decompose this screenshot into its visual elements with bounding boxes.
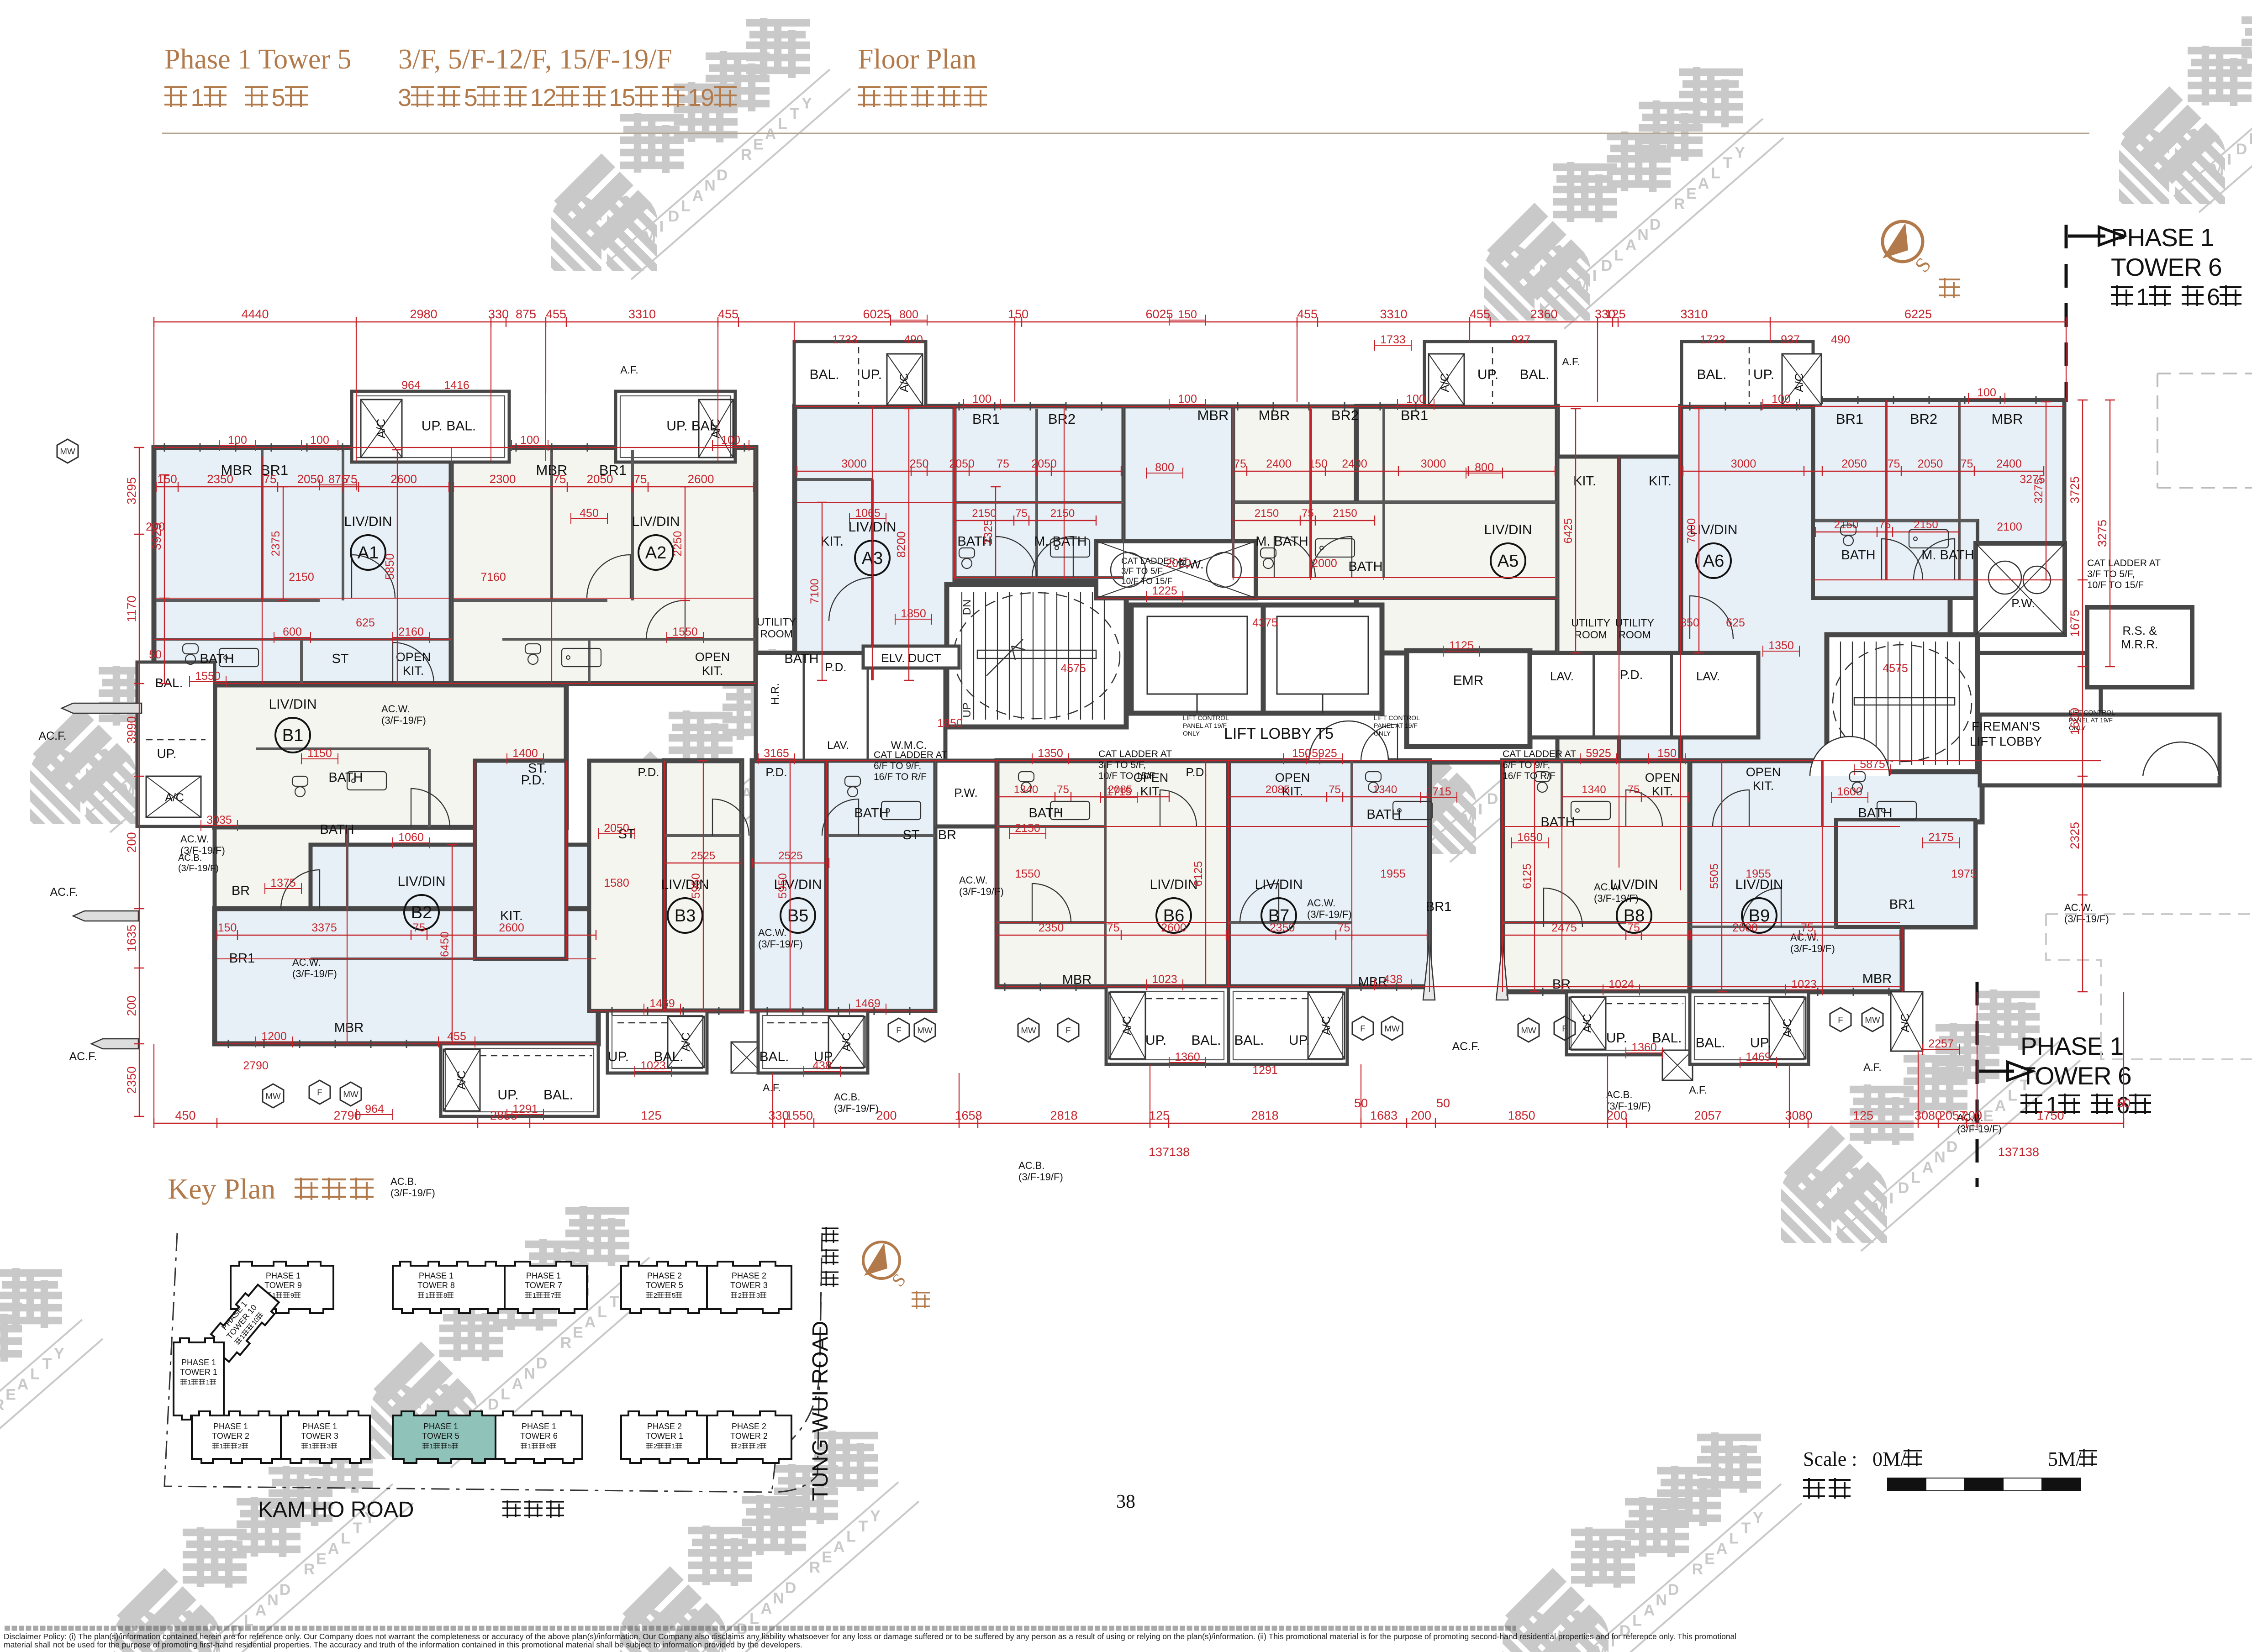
svg-text:MW: MW [1521, 1026, 1536, 1035]
svg-text:75: 75 [1627, 921, 1640, 934]
svg-text:(3/F-19/F): (3/F-19/F) [390, 1187, 435, 1199]
svg-text:UP.: UP. [1750, 1036, 1771, 1051]
svg-text:BAL.: BAL. [1697, 367, 1726, 382]
svg-text:5: 5 [271, 84, 285, 111]
svg-text:2: 2 [238, 1442, 242, 1450]
svg-text:1350: 1350 [1038, 747, 1063, 760]
svg-text:150: 150 [1292, 747, 1311, 760]
svg-text:3/F TO 5/F,: 3/F TO 5/F, [1121, 567, 1164, 576]
svg-text:875: 875 [516, 307, 536, 321]
svg-text:2050: 2050 [587, 472, 613, 486]
svg-text:A/C: A/C [680, 1032, 692, 1052]
svg-text:2150: 2150 [1255, 507, 1279, 520]
svg-text:2: 2 [756, 1442, 760, 1450]
svg-text:0M/: 0M/ [1872, 1448, 1906, 1470]
svg-text:100: 100 [1977, 386, 1996, 399]
svg-text:(3/F-19/F): (3/F-19/F) [1790, 943, 1835, 954]
svg-text:2150: 2150 [1333, 507, 1357, 520]
svg-text:75: 75 [634, 472, 647, 486]
svg-text:F: F [1360, 1024, 1365, 1033]
svg-text:UTILITY: UTILITY [1571, 617, 1610, 629]
svg-text:6025: 6025 [863, 307, 890, 321]
svg-text:AC.B.: AC.B. [178, 853, 202, 863]
svg-text:330: 330 [488, 307, 509, 321]
svg-text:3035: 3035 [206, 814, 232, 826]
svg-text:150: 150 [1308, 458, 1328, 470]
svg-text:2: 2 [654, 1292, 657, 1300]
svg-text:1125: 1125 [1449, 639, 1474, 652]
svg-text:PHASE 1: PHASE 1 [423, 1422, 458, 1431]
svg-text:(3/F-19/F): (3/F-19/F) [178, 863, 219, 873]
svg-text:(3/F-19/F): (3/F-19/F) [1594, 893, 1639, 904]
svg-text:LIV/DIN: LIV/DIN [1255, 877, 1303, 892]
svg-text:PHASE 2: PHASE 2 [732, 1271, 766, 1280]
svg-text:450: 450 [580, 507, 599, 520]
svg-text:1955: 1955 [1746, 868, 1771, 880]
svg-text:H.R.: H.R. [769, 683, 781, 705]
svg-text:(3/F-19/F): (3/F-19/F) [381, 715, 426, 726]
svg-text:1: 1 [190, 84, 204, 111]
svg-text:1350: 1350 [1768, 639, 1794, 652]
svg-text:LIFT CONTROL: LIFT CONTROL [1183, 714, 1229, 721]
svg-text:2150: 2150 [972, 507, 996, 520]
svg-text:KIT.: KIT. [1140, 784, 1162, 798]
svg-text:P.D.: P.D. [765, 765, 787, 779]
svg-text:PHASE 1: PHASE 1 [213, 1422, 248, 1431]
svg-text:3000: 3000 [1731, 458, 1756, 470]
svg-text:3/F TO 5/F,: 3/F TO 5/F, [2087, 569, 2135, 579]
svg-text:800: 800 [1475, 461, 1494, 474]
svg-text:AC.B.: AC.B. [390, 1176, 417, 1187]
svg-text:2175: 2175 [1928, 831, 1954, 844]
svg-text:A/C: A/C [898, 373, 911, 392]
svg-text:1850: 1850 [1508, 1109, 1535, 1122]
svg-text:ELV. DUCT: ELV. DUCT [881, 651, 941, 665]
svg-text:ONLY: ONLY [1183, 730, 1200, 737]
svg-text:2057: 2057 [1694, 1109, 1721, 1122]
svg-text:KAM HO ROAD: KAM HO ROAD [258, 1498, 414, 1522]
svg-text:BATH: BATH [1028, 806, 1063, 821]
svg-text:MW: MW [1021, 1026, 1036, 1035]
svg-text:75: 75 [1338, 921, 1350, 934]
svg-text:75: 75 [1057, 784, 1069, 796]
svg-text:2790: 2790 [243, 1059, 269, 1072]
svg-text:1: 1 [609, 84, 622, 111]
svg-text:7160: 7160 [480, 571, 506, 584]
svg-text:TOWER 6: TOWER 6 [2111, 253, 2222, 281]
svg-text:CAT LADDER AT: CAT LADDER AT [1098, 749, 1172, 759]
svg-text:1: 1 [206, 1378, 210, 1386]
svg-text:F: F [1562, 1024, 1567, 1033]
svg-text:5M/: 5M/ [2048, 1448, 2082, 1470]
svg-text:7: 7 [551, 1292, 554, 1300]
svg-text:LIV/DIN: LIV/DIN [344, 514, 392, 529]
svg-text:MBR: MBR [1862, 972, 1892, 986]
svg-text:MW: MW [265, 1091, 281, 1101]
svg-text:A/C: A/C [1439, 373, 1451, 392]
svg-text:50: 50 [1436, 1096, 1450, 1110]
svg-text:3: 3 [756, 1292, 760, 1300]
svg-text:1150: 1150 [307, 747, 332, 760]
svg-text:625: 625 [1726, 616, 1745, 629]
svg-text:1360: 1360 [1175, 1051, 1200, 1063]
svg-text:(3/F-19/F): (3/F-19/F) [834, 1103, 879, 1114]
svg-text:2475: 2475 [1551, 921, 1577, 934]
svg-text:490: 490 [1831, 333, 1850, 346]
svg-text:BAL.: BAL. [1191, 1033, 1221, 1048]
svg-text:AC.B.: AC.B. [834, 1091, 860, 1103]
svg-text:75: 75 [553, 472, 566, 486]
svg-text:1291: 1291 [512, 1103, 538, 1115]
svg-text:75: 75 [1302, 507, 1314, 520]
svg-text:AC.F.: AC.F. [1452, 1040, 1480, 1053]
svg-text:3/F, 5/F-12/F, 15/F-19/F: 3/F, 5/F-12/F, 15/F-19/F [398, 44, 672, 75]
svg-text:490: 490 [904, 333, 923, 346]
svg-text:CAT LADDER AT: CAT LADDER AT [2087, 558, 2161, 568]
svg-text:BATH: BATH [1841, 548, 1875, 563]
svg-text:UP.: UP. [1753, 367, 1774, 382]
svg-text:KIT.: KIT. [1649, 474, 1672, 489]
svg-text:F: F [896, 1026, 901, 1035]
svg-text:1469: 1469 [855, 997, 881, 1010]
svg-text:1550: 1550 [786, 1109, 813, 1122]
svg-text:1675: 1675 [2068, 610, 2082, 637]
svg-text:2: 2 [738, 1442, 742, 1450]
svg-text:2360: 2360 [1530, 307, 1557, 321]
svg-text:150: 150 [1178, 308, 1197, 321]
svg-text:964: 964 [401, 379, 421, 392]
svg-text:MBR: MBR [1259, 407, 1290, 423]
svg-text:2257: 2257 [1928, 1037, 1954, 1050]
svg-text:AC.W.: AC.W. [1594, 881, 1622, 893]
svg-text:2350: 2350 [1270, 921, 1295, 934]
svg-text:TOWER 2: TOWER 2 [212, 1431, 249, 1441]
svg-text:1550: 1550 [195, 670, 221, 683]
svg-text:BAL.: BAL. [809, 367, 839, 382]
svg-text:1340: 1340 [1582, 784, 1606, 796]
svg-text:6125: 6125 [1192, 861, 1205, 887]
svg-text:5505: 5505 [1708, 863, 1721, 889]
svg-text:ROOM: ROOM [1618, 629, 1651, 641]
svg-text:5: 5 [622, 84, 635, 111]
svg-text:UP. BAL.: UP. BAL. [422, 419, 476, 434]
svg-text:455: 455 [447, 1030, 466, 1043]
svg-text:2085: 2085 [1266, 784, 1290, 796]
svg-text:200: 200 [1962, 1109, 1982, 1122]
svg-text:F: F [1065, 1026, 1071, 1035]
svg-text:LAV.: LAV. [827, 739, 849, 752]
svg-text:PHASE 1: PHASE 1 [2020, 1032, 2123, 1060]
svg-text:A/C: A/C [1793, 373, 1806, 392]
svg-text:2: 2 [543, 84, 557, 111]
svg-text:BR2: BR2 [1048, 411, 1076, 427]
svg-text:2790: 2790 [333, 1109, 361, 1122]
svg-text:AC.W.: AC.W. [381, 703, 410, 715]
svg-text:BR1: BR1 [1401, 407, 1428, 423]
svg-text:UP.: UP. [608, 1049, 629, 1064]
svg-text:Disclaimer Policy: (i) The pla: Disclaimer Policy: (i) The plan(s)/infor… [4, 1632, 1736, 1641]
svg-text:1: 1 [672, 1442, 675, 1450]
svg-text:2000: 2000 [1312, 557, 1337, 570]
svg-text:1023: 1023 [1152, 973, 1177, 986]
svg-text:9: 9 [290, 1292, 294, 1300]
svg-text:3000: 3000 [1421, 458, 1446, 470]
svg-text:AC.W.: AC.W. [1307, 897, 1335, 909]
svg-text:1360: 1360 [1631, 1041, 1657, 1054]
svg-text:MBR: MBR [1992, 411, 2023, 427]
svg-text:937: 937 [1511, 333, 1530, 346]
svg-text:AC.W.: AC.W. [959, 874, 987, 886]
svg-text:5925: 5925 [1312, 747, 1337, 760]
svg-text:AC.W.: AC.W. [180, 833, 209, 845]
svg-text:75: 75 [1628, 784, 1640, 796]
svg-text:TOWER 8: TOWER 8 [417, 1281, 455, 1290]
svg-text:2150: 2150 [1015, 822, 1040, 835]
svg-text:6125: 6125 [1521, 863, 1534, 889]
svg-text:PHASE 2: PHASE 2 [732, 1422, 766, 1431]
svg-text:A/C: A/C [840, 1032, 853, 1052]
svg-text:3990: 3990 [125, 716, 138, 743]
svg-text:1: 1 [528, 1442, 532, 1450]
svg-text:Scale :: Scale : [1803, 1448, 1857, 1470]
svg-text:AC.F.: AC.F. [69, 1050, 97, 1063]
svg-text:5925: 5925 [1586, 747, 1611, 760]
svg-text:1750: 1750 [2036, 1109, 2064, 1122]
svg-text:PANEL AT 19/F: PANEL AT 19/F [1374, 722, 1418, 729]
svg-text:R.S. &: R.S. & [2122, 624, 2157, 637]
svg-text:455: 455 [718, 307, 738, 321]
svg-text:ROOM: ROOM [1574, 629, 1607, 641]
svg-text:5950: 5950 [690, 873, 702, 899]
svg-text:UTILITY: UTILITY [757, 616, 796, 628]
svg-text:P.D.: P.D. [1620, 668, 1643, 682]
svg-text:Phase 1 Tower 5: Phase 1 Tower 5 [164, 44, 352, 75]
svg-text:100: 100 [721, 434, 740, 447]
svg-text:Floor Plan: Floor Plan [858, 44, 976, 75]
svg-text:1060: 1060 [398, 831, 424, 844]
svg-text:UP: UP [961, 702, 973, 717]
svg-text:P.D.: P.D. [638, 765, 659, 779]
svg-text:PHASE 1: PHASE 1 [2111, 223, 2214, 252]
svg-text:A5: A5 [1498, 552, 1519, 571]
svg-text:2600: 2600 [390, 472, 417, 486]
svg-text:P.D.: P.D. [521, 773, 545, 788]
svg-text:2325: 2325 [982, 520, 995, 545]
svg-text:BATH: BATH [1540, 815, 1575, 830]
svg-text:1: 1 [220, 1442, 223, 1450]
svg-text:850: 850 [1680, 616, 1699, 629]
svg-text:2400: 2400 [1266, 458, 1292, 470]
svg-text:KIT.: KIT. [1573, 474, 1596, 489]
svg-text:1: 1 [2136, 284, 2149, 310]
svg-text:A1: A1 [358, 543, 379, 563]
svg-text:CAT LADDER AT: CAT LADDER AT [1503, 749, 1576, 759]
svg-text:5: 5 [464, 84, 478, 111]
svg-text:100: 100 [1772, 393, 1791, 405]
svg-text:PHASE 1: PHASE 1 [419, 1271, 454, 1280]
svg-text:A/C: A/C [455, 1071, 468, 1090]
svg-text:TOWER 3: TOWER 3 [730, 1281, 768, 1290]
svg-text:PHASE 1: PHASE 1 [526, 1271, 561, 1280]
svg-text:MW: MW [917, 1026, 933, 1035]
svg-text:P.D.: P.D. [825, 660, 846, 674]
svg-text:5850: 5850 [383, 553, 396, 580]
svg-text:3: 3 [327, 1442, 331, 1450]
svg-text:PHASE 1: PHASE 1 [302, 1422, 337, 1431]
svg-text:LAV.: LAV. [1696, 669, 1720, 683]
svg-text:1635: 1635 [125, 925, 138, 952]
svg-text:BR1: BR1 [972, 411, 1000, 427]
svg-text:1291: 1291 [1252, 1064, 1278, 1077]
svg-text:2150: 2150 [289, 571, 314, 584]
svg-text:2350: 2350 [1039, 921, 1064, 934]
svg-text:1023: 1023 [1791, 978, 1817, 991]
svg-text:2600: 2600 [499, 921, 524, 934]
svg-text:material shall not be used for: material shall not be used for the purpo… [4, 1640, 802, 1649]
svg-text:75: 75 [1961, 458, 1973, 470]
svg-text:1200: 1200 [261, 1030, 287, 1043]
svg-text:M. BATH: M. BATH [1034, 534, 1086, 549]
svg-text:UP.: UP. [1289, 1033, 1310, 1048]
svg-text:1023: 1023 [640, 1059, 666, 1072]
svg-text:137138: 137138 [1998, 1145, 2039, 1159]
svg-text:150: 150 [1008, 307, 1028, 321]
svg-text:4440: 4440 [241, 307, 269, 321]
svg-text:5: 5 [672, 1292, 675, 1300]
svg-text:16/F TO R/F: 16/F TO R/F [874, 772, 927, 782]
svg-text:75: 75 [1234, 458, 1246, 470]
svg-text:M.R.R.: M.R.R. [2121, 637, 2158, 651]
svg-text:2: 2 [738, 1292, 742, 1300]
svg-text:LIV/DIN: LIV/DIN [269, 697, 316, 712]
svg-text:6/F TO 9/F,: 6/F TO 9/F, [1503, 760, 1550, 770]
svg-text:A6: A6 [1703, 552, 1724, 571]
svg-text:100: 100 [310, 434, 329, 447]
svg-text:1024: 1024 [1609, 978, 1634, 991]
svg-text:A.F.: A.F. [1562, 356, 1580, 368]
svg-text:A/C: A/C [1320, 1016, 1333, 1035]
svg-text:BAL.: BAL. [759, 1049, 789, 1064]
svg-text:AC.W.: AC.W. [2064, 902, 2093, 913]
svg-text:1580: 1580 [604, 877, 629, 889]
svg-text:TUNG WUI ROAD: TUNG WUI ROAD [808, 1321, 833, 1501]
svg-text:2: 2 [654, 1442, 657, 1450]
svg-text:1550: 1550 [1015, 868, 1040, 880]
svg-text:250: 250 [910, 458, 929, 470]
svg-text:3310: 3310 [1380, 307, 1407, 321]
svg-text:BATH: BATH [784, 652, 818, 666]
svg-text:PHASE 1: PHASE 1 [522, 1422, 556, 1431]
svg-text:AC.W.: AC.W. [292, 957, 321, 968]
svg-text:5950: 5950 [776, 873, 789, 899]
svg-text:2600: 2600 [1732, 921, 1758, 934]
svg-text:(3/F-19/F): (3/F-19/F) [758, 938, 803, 950]
svg-text:1416: 1416 [444, 379, 469, 392]
svg-text:75: 75 [1801, 921, 1814, 934]
svg-text:LIFT LOBBY T5: LIFT LOBBY T5 [1224, 725, 1334, 742]
svg-text:PANEL AT 19/F: PANEL AT 19/F [1183, 722, 1227, 729]
svg-text:3: 3 [398, 84, 411, 111]
svg-text:2400: 2400 [1996, 458, 2022, 470]
svg-text:UP.: UP. [1606, 1031, 1627, 1046]
svg-text:50: 50 [149, 648, 162, 661]
svg-text:455: 455 [1470, 307, 1490, 321]
svg-text:1955: 1955 [1380, 868, 1406, 880]
svg-text:BATH: BATH [1348, 559, 1382, 574]
svg-text:7000: 7000 [1685, 518, 1698, 544]
svg-text:1850: 1850 [937, 717, 963, 730]
svg-text:2300: 2300 [490, 472, 516, 486]
svg-text:7100: 7100 [808, 579, 821, 604]
svg-text:UP.: UP. [157, 747, 176, 761]
svg-text:BAL.: BAL. [1695, 1036, 1725, 1051]
svg-text:M. BATH: M. BATH [1255, 534, 1308, 549]
svg-text:2980: 2980 [410, 307, 437, 321]
svg-text:1: 1 [430, 1442, 433, 1450]
svg-text:875: 875 [328, 473, 348, 486]
svg-text:TOWER 3: TOWER 3 [301, 1431, 338, 1441]
svg-text:KIT.: KIT. [1753, 779, 1774, 793]
svg-text:KIT.: KIT. [821, 534, 844, 549]
svg-text:A.F.: A.F. [620, 364, 638, 376]
svg-text:P.W.: P.W. [954, 786, 978, 800]
svg-text:OPEN: OPEN [695, 650, 730, 664]
svg-text:2000: 2000 [1166, 557, 1191, 570]
svg-text:1600: 1600 [2068, 708, 2082, 735]
svg-text:A/C: A/C [1121, 1016, 1134, 1035]
svg-text:3310: 3310 [1680, 307, 1708, 321]
svg-text:625: 625 [356, 616, 375, 629]
svg-text:BAL.: BAL. [1234, 1033, 1264, 1048]
svg-text:200: 200 [125, 995, 138, 1016]
svg-text:2400: 2400 [1342, 458, 1367, 470]
svg-text:AC.F.: AC.F. [50, 886, 78, 899]
svg-text:F: F [317, 1088, 322, 1097]
svg-text:4575: 4575 [1883, 662, 1908, 675]
svg-text:KIT.: KIT. [403, 664, 424, 678]
svg-text:1550: 1550 [672, 626, 698, 638]
svg-text:FIREMAN'S: FIREMAN'S [1972, 719, 2040, 733]
svg-text:A2: A2 [645, 543, 666, 563]
svg-text:3725: 3725 [2068, 476, 2082, 504]
svg-text:2600: 2600 [1161, 921, 1187, 934]
svg-text:ST: ST [332, 652, 348, 666]
svg-text:150: 150 [157, 472, 177, 486]
svg-text:LAV.: LAV. [1550, 669, 1574, 683]
svg-text:UP.: UP. [1477, 367, 1498, 382]
svg-text:3295: 3295 [125, 477, 138, 505]
svg-text:6/F TO 9/F,: 6/F TO 9/F, [874, 761, 921, 771]
svg-text:(3/F-19/F): (3/F-19/F) [1307, 909, 1352, 920]
svg-text:2250: 2250 [671, 531, 684, 557]
svg-text:200: 200 [1411, 1109, 1431, 1122]
svg-text:CAT LADDER AT: CAT LADDER AT [874, 750, 947, 760]
svg-text:6225: 6225 [1904, 307, 1932, 321]
svg-text:2160: 2160 [398, 626, 424, 638]
svg-text:TOWER 9: TOWER 9 [264, 1281, 302, 1290]
svg-text:1650: 1650 [1517, 831, 1543, 844]
svg-text:75: 75 [413, 921, 426, 934]
svg-text:MW: MW [1865, 1015, 1880, 1025]
svg-text:BR2: BR2 [1910, 411, 1937, 427]
svg-text:10/F TO 15/F: 10/F TO 15/F [2087, 580, 2144, 590]
svg-text:BAL.: BAL. [155, 676, 183, 690]
svg-text:A.F.: A.F. [1689, 1084, 1707, 1096]
svg-text:UP.: UP. [497, 1088, 518, 1103]
svg-text:5: 5 [448, 1442, 452, 1450]
svg-text:100: 100 [972, 393, 992, 405]
svg-text:1: 1 [530, 84, 543, 111]
